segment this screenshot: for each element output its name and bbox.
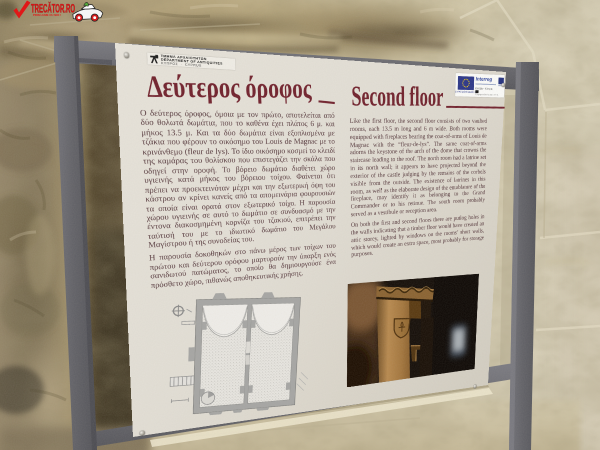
svg-text:PRIN LUME CU NOI !: PRIN LUME CU NOI ! <box>33 13 61 17</box>
